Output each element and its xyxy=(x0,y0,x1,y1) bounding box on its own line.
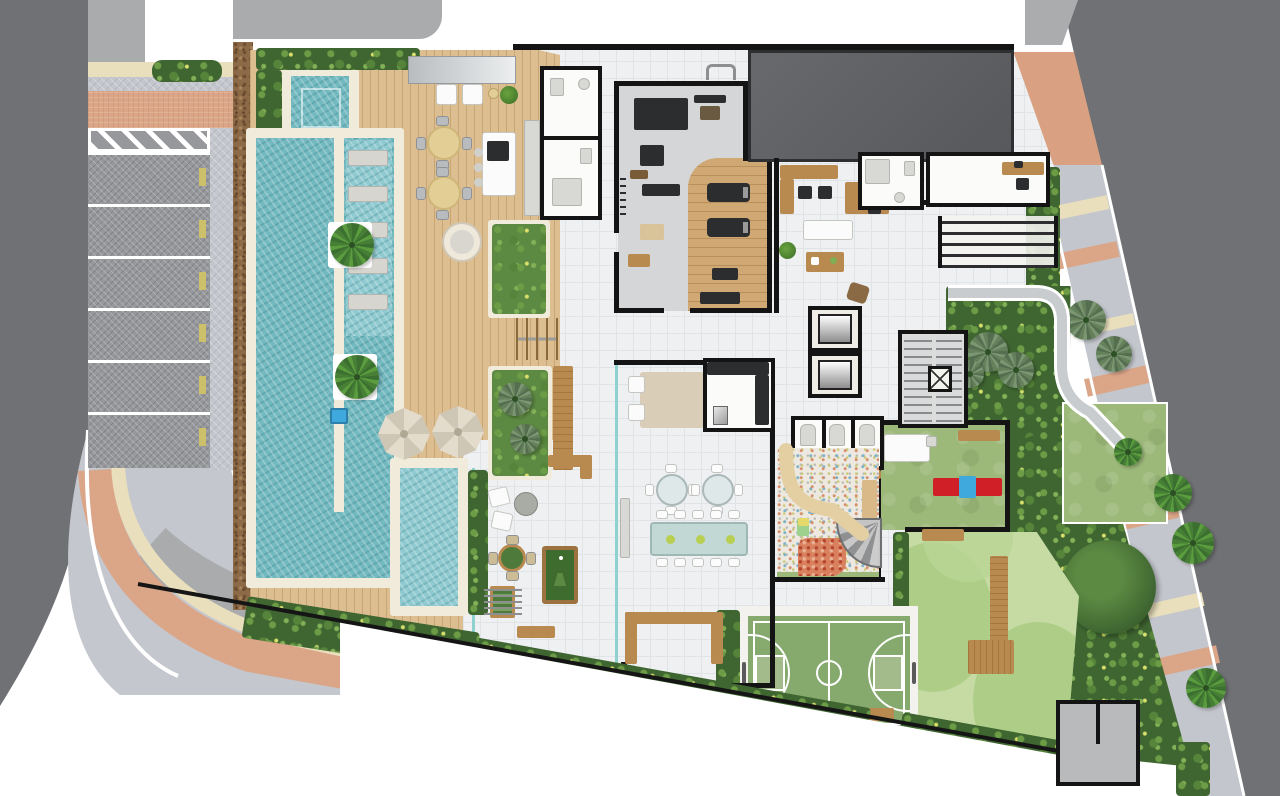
sidewalk-hedge-end xyxy=(1176,742,1210,796)
sidewalk-palm xyxy=(1172,522,1214,564)
garden-ramp xyxy=(948,293,1128,452)
playroom-sand-path xyxy=(786,450,862,534)
outside-mask xyxy=(340,622,1064,796)
sidewalk-palm xyxy=(1154,474,1192,512)
utility-room xyxy=(1056,700,1140,786)
site-plan xyxy=(0,0,1280,796)
overlay-layer xyxy=(0,0,1280,796)
sidewalk-palm xyxy=(1114,438,1142,466)
sidewalk-palm xyxy=(1186,668,1226,708)
